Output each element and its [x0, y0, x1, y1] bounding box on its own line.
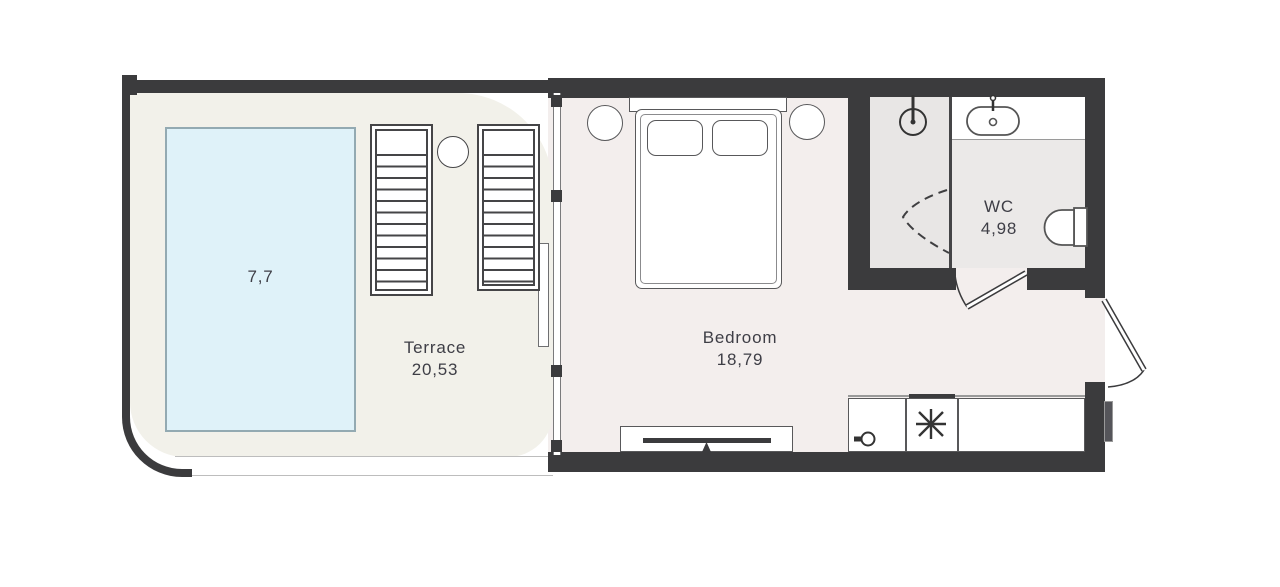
terrace-area: 20,53 — [355, 359, 515, 381]
sun-lounger-2 — [477, 124, 540, 291]
bedroom-label: Bedroom 18,79 — [660, 327, 820, 371]
wall-right-upper — [1085, 78, 1105, 298]
shower-floor — [870, 97, 950, 268]
bedroom-area: 18,79 — [660, 349, 820, 371]
glass-wall — [553, 93, 561, 455]
sun-lounger-slats — [377, 154, 426, 288]
glass-wall-mullion — [551, 190, 562, 202]
round-side-table — [437, 136, 469, 168]
pool-area-label: 7,7 — [165, 266, 356, 288]
wall-top-main — [548, 78, 1105, 98]
stove-top-edge — [909, 394, 955, 398]
wall-bottom-main — [548, 452, 1105, 472]
stove-unit — [906, 398, 958, 452]
glass-wall-mullion — [551, 95, 562, 107]
tv — [643, 438, 771, 443]
floor-plan: 7,7 — [0, 0, 1280, 587]
wall-bathroom-bottom-right — [1027, 268, 1105, 290]
terrace-name: Terrace — [355, 337, 515, 359]
vanity-counter — [952, 97, 1085, 140]
kitchen-sink-unit — [848, 398, 906, 452]
wc-name: WC — [949, 196, 1049, 218]
wall-bathroom-left — [848, 78, 870, 290]
pillow-left — [647, 120, 703, 156]
pillow-right — [712, 120, 768, 156]
sun-lounger-1 — [370, 124, 433, 296]
sun-lounger-slats — [484, 154, 533, 283]
wall-bathroom-bottom-left — [848, 268, 956, 290]
glass-wall-mullion — [551, 365, 562, 377]
bedroom-name: Bedroom — [660, 327, 820, 349]
wc-area: 4,98 — [949, 218, 1049, 240]
terrace-label: Terrace 20,53 — [355, 337, 515, 381]
terrace-edge-band — [175, 456, 553, 476]
exterior-unit — [1104, 401, 1113, 442]
kitchen-counter — [958, 398, 1085, 452]
glass-wall-mullion — [551, 440, 562, 452]
bedside-table-right — [789, 104, 825, 140]
entrance-door — [1104, 300, 1144, 387]
bedside-table-left — [587, 105, 623, 141]
kitchen-counter-edge — [848, 395, 1085, 397]
wc-label: WC 4,98 — [949, 196, 1049, 240]
entrance-threshold — [1085, 296, 1105, 382]
wall-top-terrace — [122, 80, 548, 93]
